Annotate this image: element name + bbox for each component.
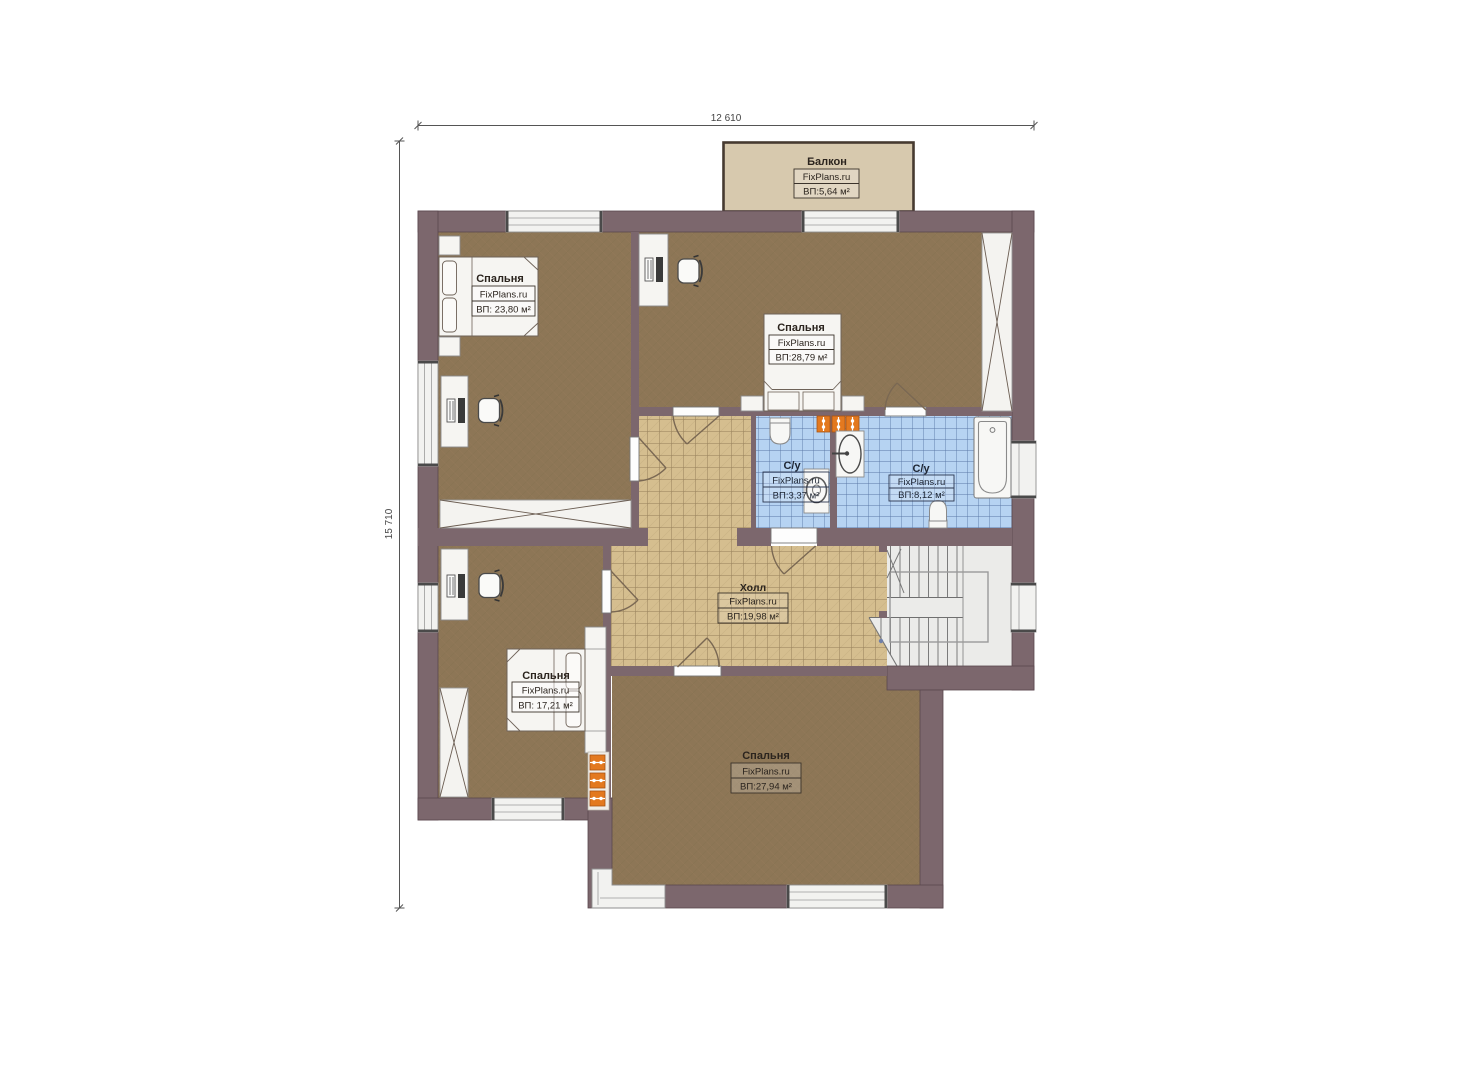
svg-text:ВП:5,64 м²: ВП:5,64 м² [803, 187, 850, 198]
svg-text:FixPlans.ru: FixPlans.ru [898, 477, 946, 488]
svg-text:ВП:3,37 м²: ВП:3,37 м² [773, 491, 820, 502]
svg-text:FixPlans.ru: FixPlans.ru [772, 476, 820, 487]
svg-text:FixPlans.ru: FixPlans.ru [742, 767, 790, 778]
svg-text:Спальня: Спальня [522, 670, 570, 682]
svg-text:FixPlans.ru: FixPlans.ru [803, 172, 851, 183]
svg-text:ВП: 17,21 м²: ВП: 17,21 м² [518, 701, 573, 712]
svg-text:FixPlans.ru: FixPlans.ru [480, 290, 528, 301]
svg-text:15 710: 15 710 [384, 508, 395, 539]
svg-text:Холл: Холл [740, 582, 766, 594]
svg-text:С/у: С/у [912, 463, 930, 475]
svg-text:ВП:19,98 м²: ВП:19,98 м² [727, 612, 779, 623]
svg-text:12 610: 12 610 [711, 113, 742, 124]
svg-text:Спальня: Спальня [742, 750, 790, 762]
svg-text:ВП:8,12 м²: ВП:8,12 м² [898, 490, 945, 501]
svg-text:С/у: С/у [783, 460, 801, 472]
svg-text:ВП: 23,80 м²: ВП: 23,80 м² [476, 305, 531, 316]
svg-text:ВП:28,79 м²: ВП:28,79 м² [776, 353, 828, 364]
svg-text:Спальня: Спальня [777, 322, 825, 334]
svg-text:ВП:27,94 м²: ВП:27,94 м² [740, 782, 792, 793]
svg-text:FixPlans.ru: FixPlans.ru [522, 686, 570, 697]
svg-text:Балкон: Балкон [807, 156, 847, 168]
svg-text:FixPlans.ru: FixPlans.ru [729, 597, 777, 608]
svg-text:FixPlans.ru: FixPlans.ru [778, 338, 826, 349]
svg-text:Спальня: Спальня [476, 273, 524, 285]
